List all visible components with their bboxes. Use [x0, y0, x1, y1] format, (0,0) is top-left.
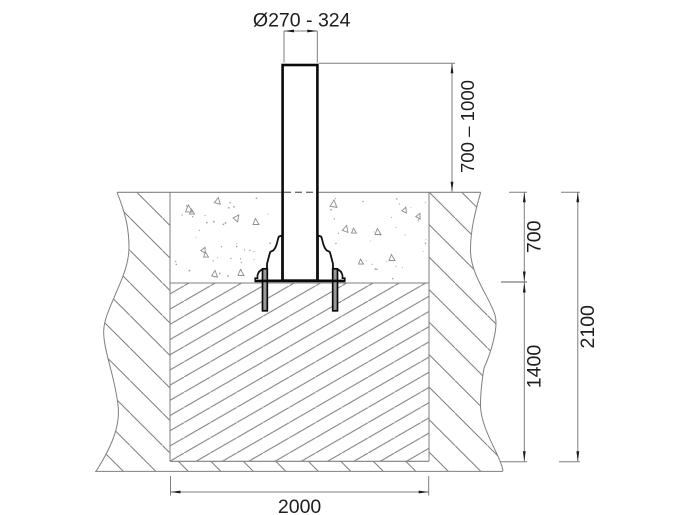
svg-text:1400: 1400 — [523, 345, 545, 389]
svg-text:700 – 1000: 700 – 1000 — [457, 80, 478, 173]
svg-text:2100: 2100 — [577, 305, 599, 349]
svg-text:700: 700 — [523, 220, 545, 253]
svg-text:Ø270 - 324: Ø270 - 324 — [253, 10, 351, 32]
svg-text:2000: 2000 — [278, 496, 322, 515]
